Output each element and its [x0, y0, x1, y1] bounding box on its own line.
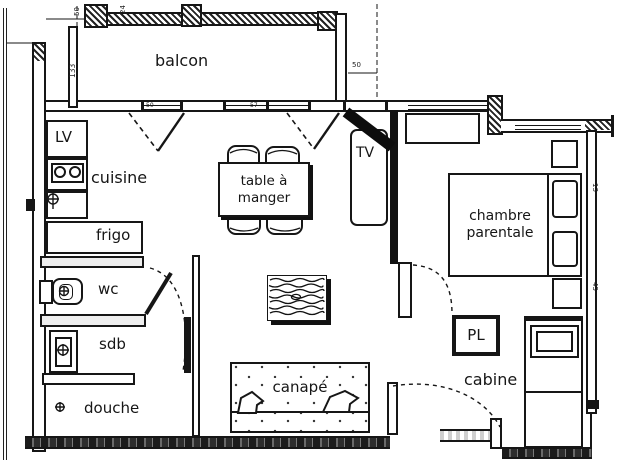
tv-label: TV — [356, 145, 374, 163]
dim-right-lower: 45 — [591, 282, 599, 291]
shower-label: douche — [84, 399, 139, 418]
floor-plan: table à manger canapé chambre parentale — [0, 0, 620, 465]
kitchen-label: cuisine — [91, 168, 147, 188]
balcony-label: balcon — [155, 51, 208, 71]
fridge-label: frigo — [96, 226, 130, 245]
dim-balcony-depth: 133 — [68, 64, 77, 78]
dim-balcony-end: 50 — [352, 61, 361, 69]
dishwasher-label: LV — [55, 128, 72, 147]
dim-top-tick-b: 24 — [119, 5, 127, 14]
plan-linework — [0, 0, 620, 465]
tv-icon — [346, 112, 392, 147]
bathroom-label: sdb — [99, 335, 126, 354]
wc-label: wc — [98, 280, 119, 299]
cabin-label: cabine — [464, 370, 517, 390]
dim-wall-tick-b: 57 — [250, 102, 258, 109]
dim-top-tick-a: 50 — [73, 7, 81, 16]
dim-wall-tick-a: 50 — [146, 102, 154, 109]
dim-right-upper: 13 — [591, 183, 599, 192]
